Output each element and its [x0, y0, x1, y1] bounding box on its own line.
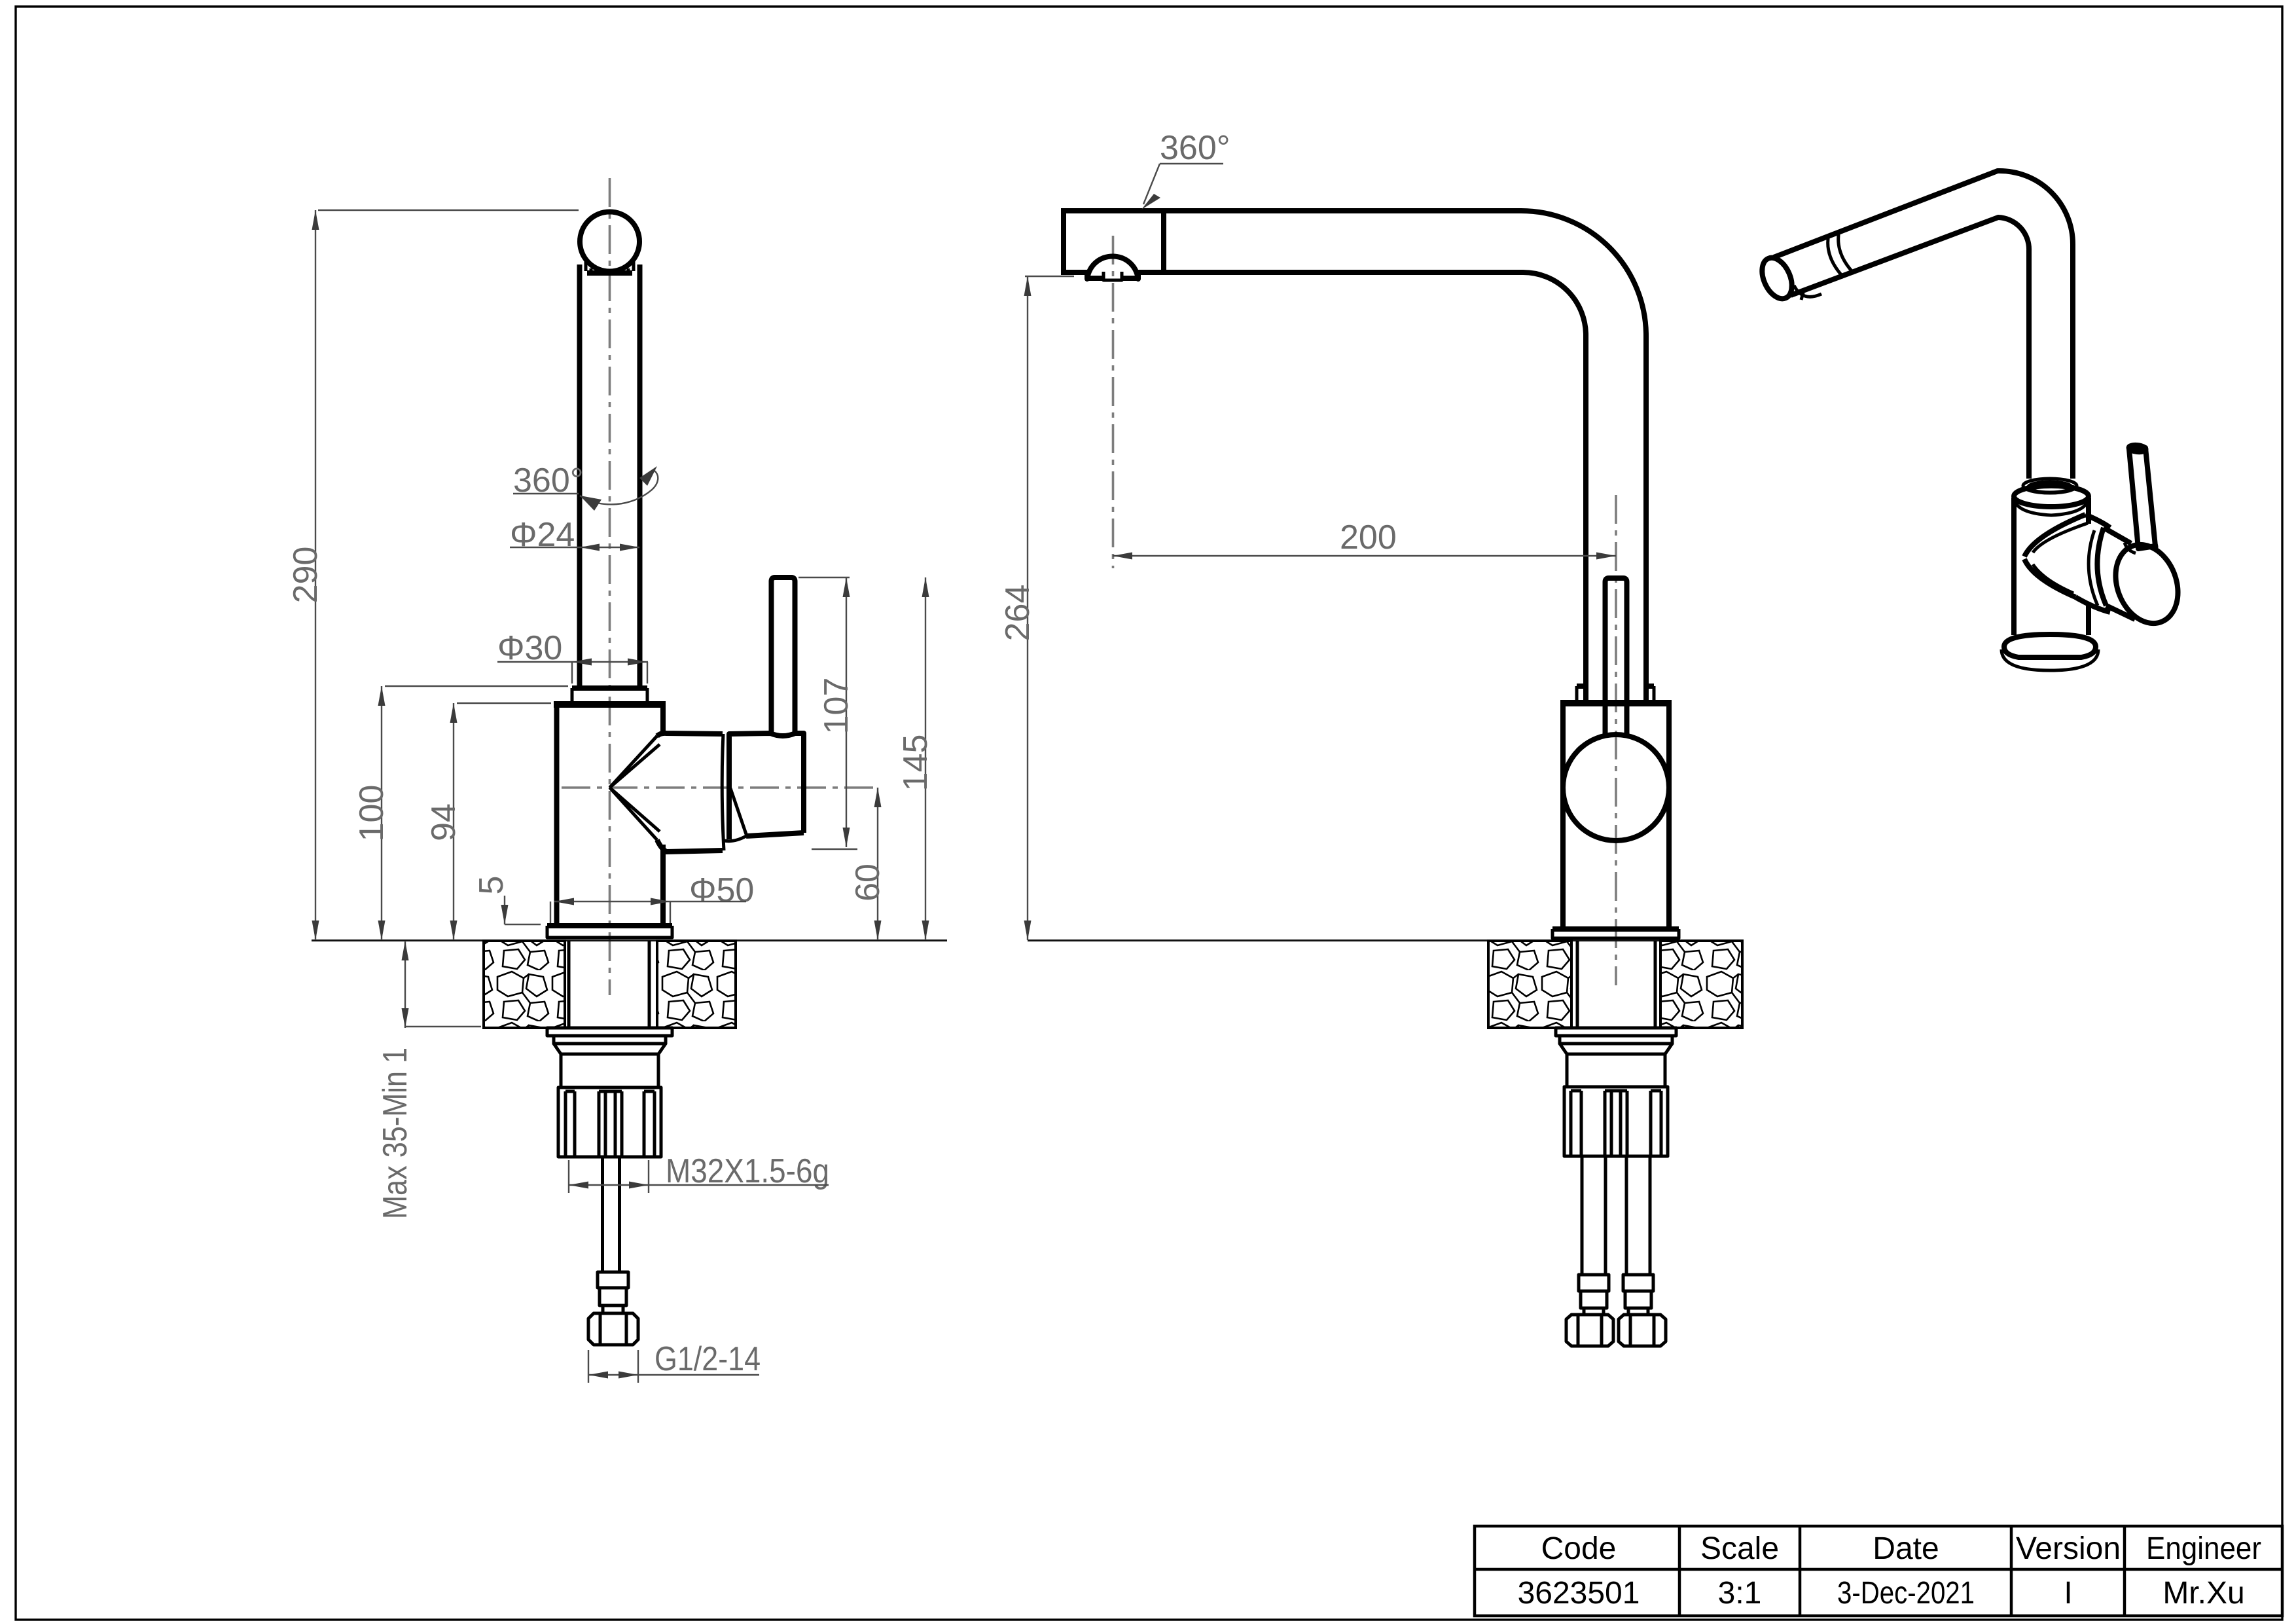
svg-text:60: 60	[849, 864, 887, 902]
svg-text:Max 35-Min 1: Max 35-Min 1	[376, 1048, 414, 1219]
svg-text:360°: 360°	[1160, 129, 1230, 167]
svg-text:100: 100	[353, 785, 391, 842]
svg-text:264: 264	[999, 585, 1037, 642]
svg-text:I: I	[2064, 1576, 2072, 1611]
svg-text:5: 5	[473, 876, 511, 895]
svg-text:200: 200	[1340, 519, 1397, 556]
svg-text:G1/2-14: G1/2-14	[655, 1340, 761, 1378]
svg-text:Mr.Xu: Mr.Xu	[2162, 1576, 2244, 1611]
svg-text:94: 94	[425, 803, 463, 841]
svg-text:290: 290	[287, 547, 325, 604]
svg-text:Engineer: Engineer	[2146, 1531, 2261, 1566]
svg-text:Version: Version	[2016, 1531, 2121, 1566]
svg-text:107: 107	[817, 678, 855, 735]
svg-text:3623501: 3623501	[1518, 1576, 1640, 1611]
svg-text:Φ24: Φ24	[510, 516, 575, 554]
svg-text:Scale: Scale	[1700, 1531, 1779, 1566]
svg-text:3-Dec-2021: 3-Dec-2021	[1837, 1576, 1975, 1611]
svg-text:Date: Date	[1873, 1531, 1939, 1566]
svg-text:Φ50: Φ50	[689, 871, 754, 909]
svg-text:145: 145	[897, 735, 935, 792]
svg-text:Code: Code	[1541, 1531, 1617, 1566]
svg-text:3:1: 3:1	[1718, 1576, 1762, 1611]
